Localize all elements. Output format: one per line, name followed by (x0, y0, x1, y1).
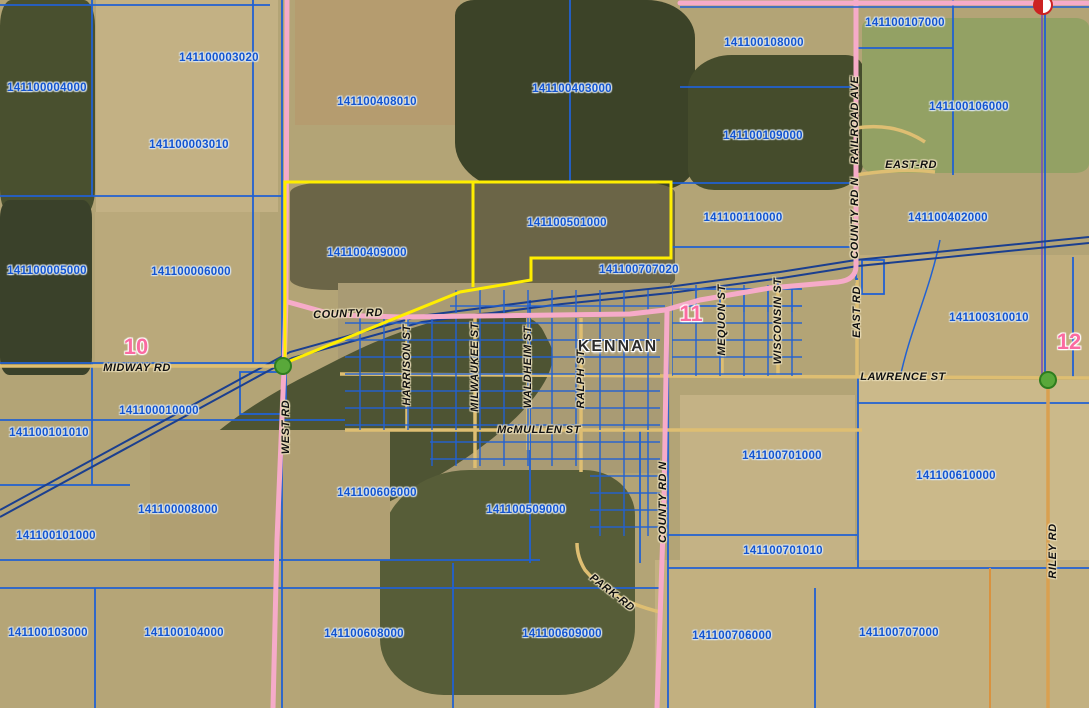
parcel-label[interactable]: 141100006000 (151, 266, 231, 278)
parcel-label[interactable]: 141100106000 (929, 101, 1009, 113)
parcel-label[interactable]: 141100108000 (724, 37, 804, 49)
road-label-midway-rd: MIDWAY RD (103, 362, 171, 374)
red-section-corner-wedge (1034, 0, 1043, 14)
road-label-harrison-st: HARRISON ST (401, 324, 413, 405)
parcel-label[interactable]: 141100008000 (138, 504, 218, 516)
parcel-label[interactable]: 141100701010 (743, 545, 823, 557)
parcel-label[interactable]: 141100610000 (916, 470, 996, 482)
section-number: 11 (679, 301, 702, 327)
parcel-label[interactable]: 141100403000 (532, 83, 612, 95)
parcel-label[interactable]: 141100003020 (179, 52, 259, 64)
parcel-label[interactable]: 141100003010 (149, 139, 229, 151)
parcel-label[interactable]: 141100701000 (742, 450, 822, 462)
road-label-county-rd-n-south: COUNTY RD N (657, 461, 669, 543)
parcel-label[interactable]: 141100609000 (522, 628, 602, 640)
map-line-overlay (0, 0, 1089, 708)
parcel-label[interactable]: 141100107000 (865, 17, 945, 29)
parcel-label[interactable]: 141100005000 (7, 265, 87, 277)
parcel-label[interactable]: 141100010000 (119, 405, 199, 417)
road-label-railroad-ave: RAILROAD AVE (849, 76, 861, 165)
green-junction-marker (275, 358, 291, 374)
parcel-label[interactable]: 141100707020 (599, 264, 679, 276)
parcel-label[interactable]: 141100706000 (692, 630, 772, 642)
parcel-label[interactable]: 141100409000 (327, 247, 407, 259)
green-junction-marker (1040, 372, 1056, 388)
road-label-county-rd: COUNTY RD (313, 307, 383, 321)
parcel-label[interactable]: 141100104000 (144, 627, 224, 639)
parcel-label[interactable]: 141100110000 (703, 212, 782, 224)
road-label-east-rd-vertical: EAST RD (851, 286, 863, 338)
road-label-lawrence-st: LAWRENCE ST (860, 371, 946, 383)
parcel-label[interactable]: 141100101010 (9, 427, 89, 439)
road-label-milwaukee-st: MILWAUKEE ST (469, 322, 481, 412)
road-label-mequon-st: MEQUON ST (716, 284, 728, 355)
parcel-label[interactable]: 141100408010 (337, 96, 417, 108)
parcel-label[interactable]: 141100606000 (337, 487, 417, 499)
parcel-label[interactable]: 141100509000 (486, 504, 566, 516)
road-label-wisconsin-st: WISCONSIN ST (772, 278, 784, 365)
section-number: 10 (124, 334, 148, 360)
road-label-ralph-st: RALPH ST (575, 350, 587, 409)
road-label-east-rd-horizontal: EAST-RD (885, 159, 937, 171)
section-number: 12 (1057, 329, 1081, 355)
parcel-label[interactable]: 141100103000 (8, 627, 88, 639)
parcel-label[interactable]: 141100004000 (7, 82, 87, 94)
parcel-label[interactable]: 141100109000 (723, 130, 803, 142)
parcel-label[interactable]: 141100501000 (527, 217, 607, 229)
road-label-mcmullen-st: McMULLEN ST (497, 424, 581, 436)
road-label-waldheim-st: WALDHEIM ST (522, 326, 534, 409)
parcel-label[interactable]: 141100608000 (324, 628, 404, 640)
parcel-label[interactable]: 141100707000 (859, 627, 939, 639)
town-name-label: KENNAN (578, 338, 658, 356)
parcel-label[interactable]: 141100310010 (949, 312, 1029, 324)
parcel-label[interactable]: 141100402000 (908, 212, 988, 224)
road-label-riley-rd: RILEY RD (1047, 523, 1059, 578)
parcel-label[interactable]: 141100101000 (16, 530, 96, 542)
road-label-west-rd: WEST RD (280, 400, 292, 454)
road-label-county-rd-n-top: COUNTY RD N (849, 177, 861, 259)
gis-parcel-map[interactable]: 141100004000 141100003020 141100003010 1… (0, 0, 1089, 708)
